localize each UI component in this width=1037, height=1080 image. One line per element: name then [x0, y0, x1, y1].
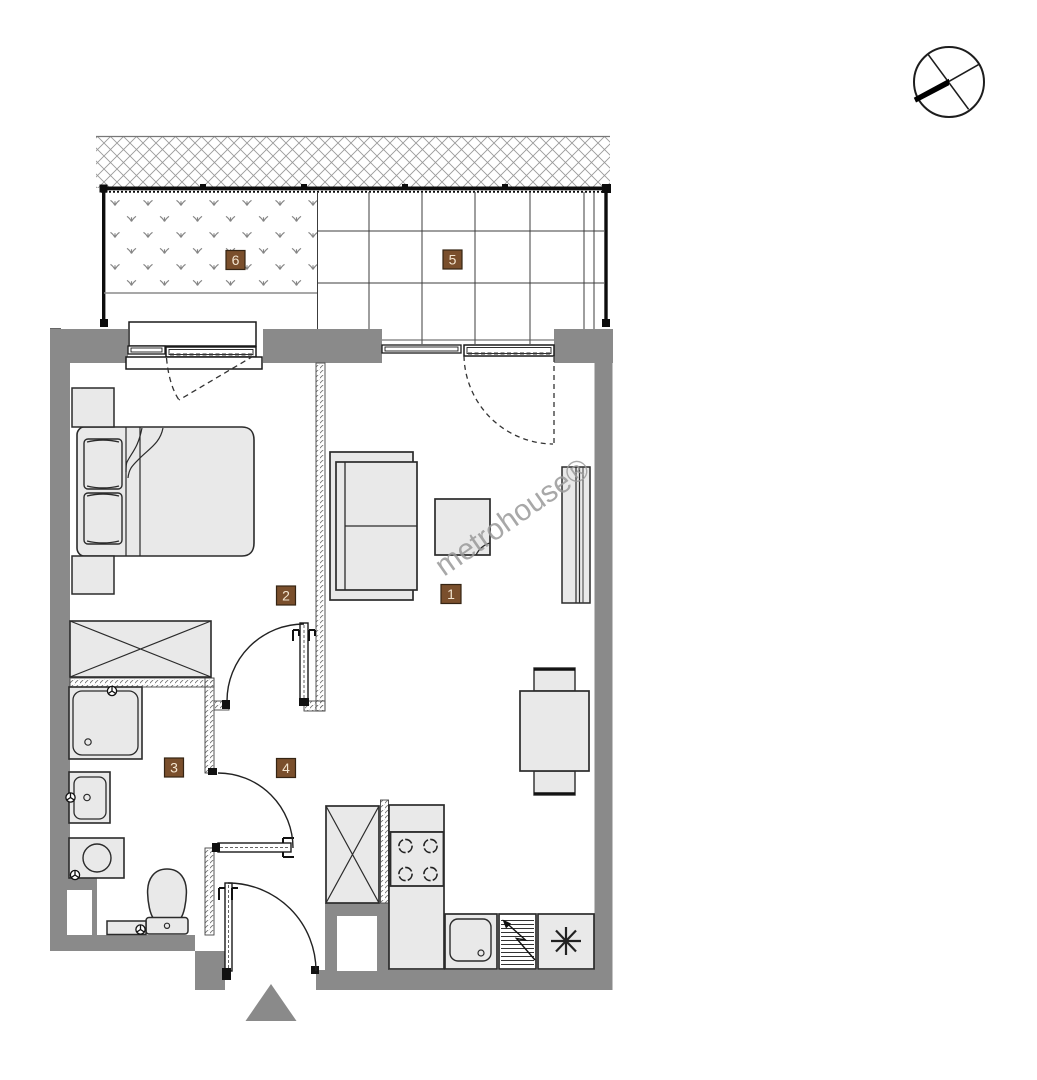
svg-text:2: 2 [282, 588, 290, 604]
svg-text:4: 4 [282, 760, 290, 776]
svg-text:6: 6 [232, 252, 240, 268]
svg-text:1: 1 [447, 586, 455, 602]
svg-text:3: 3 [170, 760, 178, 776]
svg-text:5: 5 [449, 252, 457, 268]
